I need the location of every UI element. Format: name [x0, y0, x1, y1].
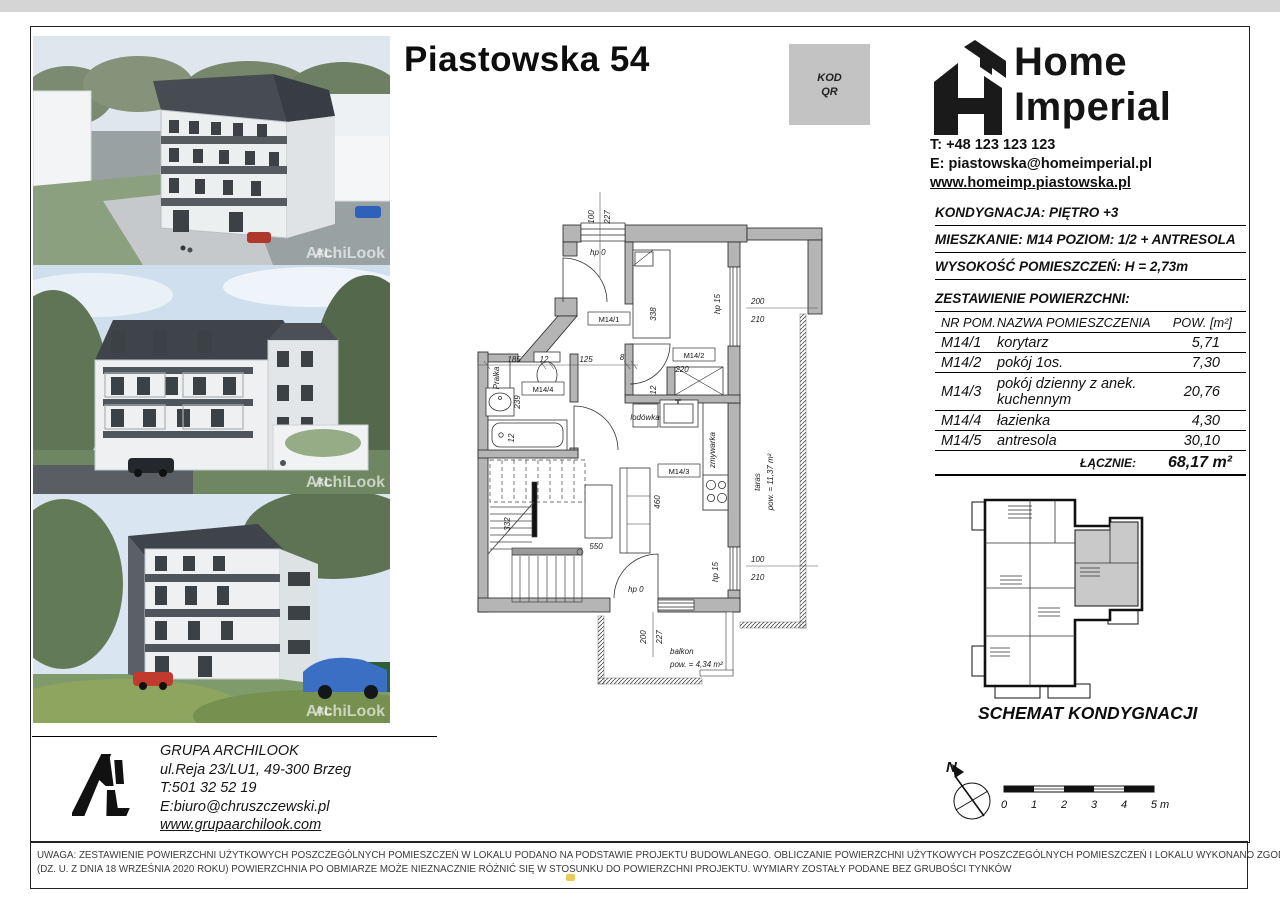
total-area: 68,17 m² [1146, 454, 1246, 472]
header-room-name: NAZWA POMIESZCZENIA [997, 315, 1156, 331]
room4-label: M14/4 [533, 385, 554, 394]
render-front-illustration: AL ArchiLook [33, 265, 390, 494]
architect-website-link[interactable]: www.grupaarchilook.com [160, 816, 351, 835]
tub-dim: 12 [507, 433, 516, 442]
room2-label: M14/2 [684, 351, 705, 360]
terrace-label: taras [753, 473, 762, 491]
dim-right-210: 210 [750, 315, 765, 324]
scale-tick-5m: 5 m [1151, 799, 1169, 811]
home-imperial-wordmark: Home Imperial [1014, 40, 1171, 130]
architect-email: E:biuro@chruszczewski.pl [160, 798, 351, 817]
sink-dim: 239 [513, 395, 522, 410]
areas-table-header: NR POM. NAZWA POMIESZCZENIA POW. [m²] [935, 313, 1246, 333]
room-no: M14/3 [935, 384, 997, 400]
architect-contact-block: GRUPA ARCHILOOK ul.Reja 23/LU1, 49-300 B… [160, 742, 351, 835]
table-row: M14/1 korytarz 5,71 [935, 333, 1246, 353]
scale-tick-3: 3 [1091, 799, 1098, 811]
disclaimer-box: UWAGA: ZESTAWIENIE POWIERZCHNI UŻYTKOWYC… [30, 841, 1248, 889]
door-top-label: hp 0 [590, 248, 606, 257]
areas-table-title: ZESTAWIENIE POWIERZCHNI: [935, 291, 1246, 312]
total-label: ŁĄCZNIE: [1080, 456, 1136, 470]
room-area: 30,10 [1144, 433, 1246, 449]
architect-address: ul.Reja 23/LU1, 49-300 Brzeg [160, 761, 351, 780]
dim-12: 12 [540, 355, 549, 364]
dim-185: 185 [507, 355, 521, 364]
red-car [247, 232, 271, 243]
stove [703, 475, 728, 510]
floor-plan-drawing: 100 227 hp 0 M14/1 338 M14/2 hp 15 200 2… [470, 192, 840, 707]
room-area: 4,30 [1144, 413, 1246, 429]
door-bottom-label: hp 0 [628, 585, 644, 594]
archilook-watermark: ArchiLook [306, 474, 385, 491]
balcony-boundary [598, 612, 733, 684]
archilook-watermark: ArchiLook [306, 703, 385, 720]
room-area: 7,30 [1144, 355, 1246, 371]
flyer-page: AL ArchiLook [0, 0, 1280, 905]
disclaimer-line2: (DZ. U. Z DNIA 18 WRZEŚNIA 2020 ROKU) PO… [37, 863, 1157, 877]
red-car [133, 672, 173, 686]
brand-line2: Imperial [1014, 85, 1171, 130]
info-floor: KONDYGNACJA: PIĘTRO +3 [935, 205, 1246, 226]
sofa [620, 468, 650, 553]
render-aerial-illustration: AL ArchiLook [33, 36, 390, 265]
dim-125: 125 [579, 355, 593, 364]
room1-label: M14/1 [599, 315, 620, 324]
dim-8: 8 [620, 353, 625, 362]
scale-tick-4: 4 [1121, 799, 1127, 811]
plan-furniture [486, 250, 728, 553]
north-compass-icon: N [942, 756, 998, 826]
home-imperial-logo-icon [928, 38, 1010, 136]
developer-phone: T: +48 123 123 123 [930, 136, 1152, 155]
page-top-margin [0, 0, 1280, 12]
info-ceiling-height: WYSOKOŚĆ POMIESZCZEŃ: H = 2,73m [935, 259, 1246, 280]
room-area: 20,76 [1144, 384, 1246, 400]
table-row: M14/3 pokój dzienny z anek. kuchennym 20… [935, 373, 1246, 411]
stairs-dim: 332 [503, 517, 512, 531]
room-no: M14/4 [935, 413, 997, 429]
living-dim-h: 550 [589, 542, 603, 551]
architect-phone: T:501 32 52 19 [160, 779, 351, 798]
room-area: 5,71 [1144, 335, 1246, 351]
table-row: M14/2 pokój 1os. 7,30 [935, 353, 1246, 373]
schematic-caption: SCHEMAT KONDYGNACJI [978, 703, 1197, 724]
building-render-side: AL ArchiLook [33, 494, 390, 723]
dishwasher-label: zmywarka [708, 431, 717, 469]
table-total-row: ŁĄCZNIE: 68,17 m² [935, 451, 1246, 476]
header-room-no: NR POM. [935, 315, 997, 330]
room-name: korytarz [997, 335, 1144, 351]
balcony-dim-227: 227 [655, 630, 664, 645]
footer-divider [32, 736, 437, 737]
table-row: M14/4 łazienka 4,30 [935, 411, 1246, 431]
dim-right-200: 200 [750, 297, 765, 306]
archilook-watermark: ArchiLook [306, 245, 385, 262]
dim-br-210: 210 [750, 573, 765, 582]
watermark-artifact [566, 874, 575, 881]
scale-tick-0: 0 [1001, 799, 1008, 811]
room-no: M14/1 [935, 335, 997, 351]
balcony-area: pow. = 4,34 m² [669, 660, 723, 669]
living-dim-v: 460 [653, 495, 662, 509]
bed-dim: 338 [649, 307, 658, 321]
qr-code-placeholder: KOD QR [789, 44, 870, 125]
grupa-archilook-logo-icon [72, 750, 140, 820]
developer-contact: T: +48 123 123 123 E: piastowska@homeimp… [930, 136, 1152, 193]
wardrobe-dim: 12 [649, 385, 658, 394]
washer-label: Pralka [492, 366, 501, 389]
qr-label-line1: KOD [817, 71, 841, 85]
developer-email: E: piastowska@homeimperial.pl [930, 155, 1152, 174]
building-render-aerial: AL ArchiLook [33, 36, 390, 265]
table-row: M14/5 antresola 30,10 [935, 431, 1246, 451]
room3-label: M14/3 [669, 467, 690, 476]
room-name: pokój 1os. [997, 355, 1144, 371]
scale-bar: 0 1 2 3 4 5 m [1000, 780, 1185, 812]
developer-website-link[interactable]: www.homeimp.piastowska.pl [930, 174, 1152, 193]
blue-car [355, 206, 381, 218]
room-no: M14/5 [935, 433, 997, 449]
qr-label-line2: QR [821, 85, 838, 99]
balcony-label: balkon [670, 647, 694, 656]
render-side-illustration: AL ArchiLook [33, 494, 390, 723]
dim-br-100: 100 [751, 555, 765, 564]
room-name: łazienka [997, 413, 1144, 429]
table [585, 485, 612, 538]
dim-220: 220 [674, 365, 689, 374]
dim-top-227: 227 [603, 210, 612, 225]
balcony-dim-200: 200 [639, 630, 648, 645]
fridge-label: lodówka [630, 413, 660, 422]
header-area: POW. [m²] [1156, 315, 1246, 330]
page-title: Piastowska 54 [404, 40, 650, 80]
room-name: pokój dzienny z anek. kuchennym [997, 376, 1144, 408]
scale-tick-2: 2 [1060, 799, 1067, 811]
floor-schematic [960, 488, 1160, 703]
building-render-front: AL ArchiLook [33, 265, 390, 494]
window-right-label: hp 15 [713, 293, 722, 314]
disclaimer-line1: UWAGA: ZESTAWIENIE POWIERZCHNI UŻYTKOWYC… [37, 849, 1157, 863]
washbasin [489, 393, 511, 411]
terrace-area: pow. = 11,37 m² [766, 453, 775, 511]
room-no: M14/2 [935, 355, 997, 371]
window-br-label: hp 15 [711, 561, 720, 582]
architect-name: GRUPA ARCHILOOK [160, 742, 351, 761]
dim-top-100: 100 [587, 210, 596, 224]
room-name: antresola [997, 433, 1144, 449]
areas-table: NR POM. NAZWA POMIESZCZENIA POW. [m²] M1… [935, 313, 1246, 476]
scale-tick-1: 1 [1031, 799, 1037, 811]
brand-line1: Home [1014, 40, 1171, 85]
info-apartment: MIESZKANIE: M14 POZIOM: 1/2 + ANTRESOLA [935, 232, 1246, 253]
